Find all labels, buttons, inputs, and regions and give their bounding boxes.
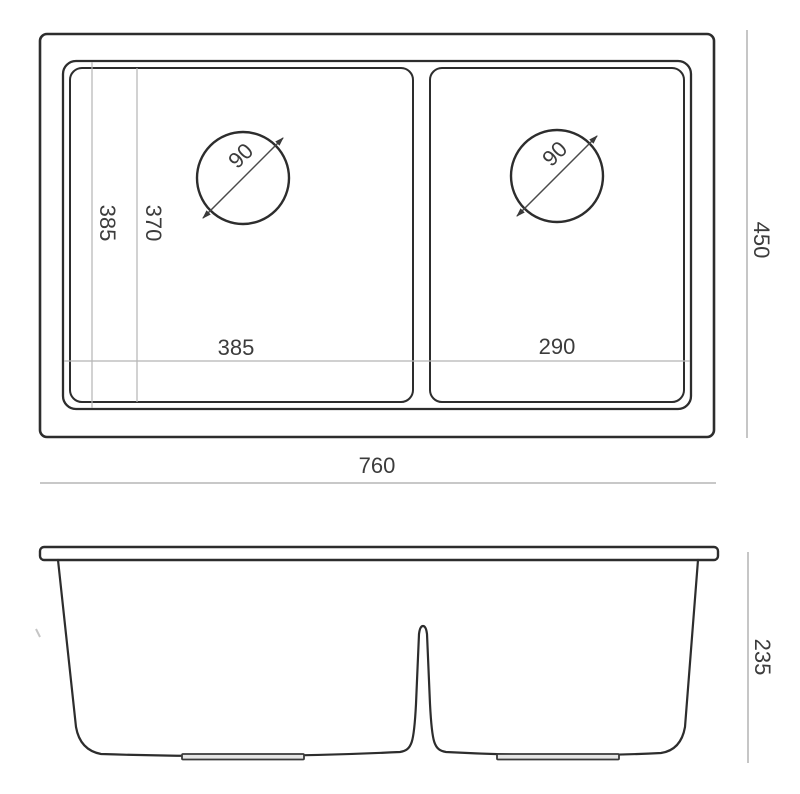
front-view-body bbox=[58, 560, 698, 756]
left-drain: 90 bbox=[197, 132, 289, 224]
right-bowl-width-label: 290 bbox=[539, 334, 576, 359]
right-drain: 90 bbox=[511, 130, 603, 222]
stray-mark bbox=[36, 629, 40, 637]
bowl-depth-label: 370 bbox=[141, 205, 166, 242]
front-view: 235 bbox=[36, 547, 775, 763]
rim-depth-label: 385 bbox=[95, 205, 120, 242]
right-foot-pad bbox=[497, 754, 619, 760]
overall-width-label: 760 bbox=[359, 453, 396, 478]
front-view-rim-slab bbox=[40, 547, 718, 560]
drawing-canvas: 90 90 385 370 385 290 450 760 bbox=[0, 0, 800, 794]
left-foot-pad bbox=[182, 754, 304, 760]
top-view: 90 90 385 370 385 290 450 760 bbox=[40, 30, 774, 483]
overall-height-label: 235 bbox=[750, 639, 775, 676]
overall-depth-label: 450 bbox=[749, 222, 774, 259]
left-bowl-width-label: 385 bbox=[218, 335, 255, 360]
sink-technical-drawing: 90 90 385 370 385 290 450 760 bbox=[0, 0, 800, 794]
